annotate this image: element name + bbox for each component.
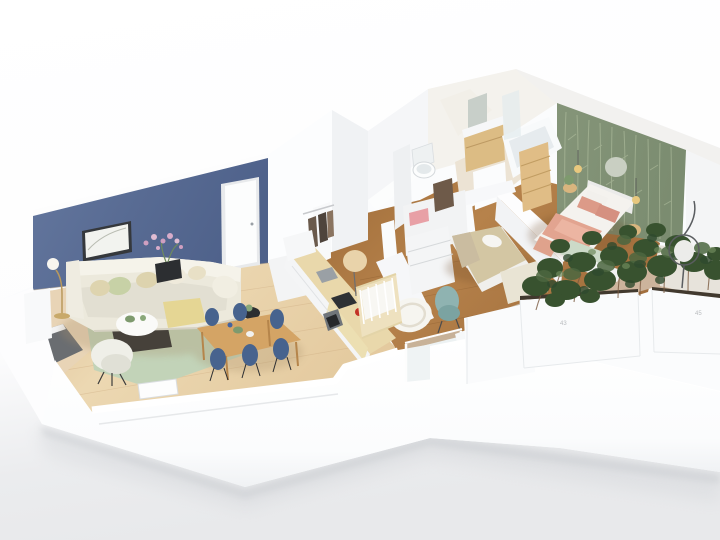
svg-text:45: 45 (695, 311, 702, 317)
svg-text:43: 43 (560, 321, 567, 327)
